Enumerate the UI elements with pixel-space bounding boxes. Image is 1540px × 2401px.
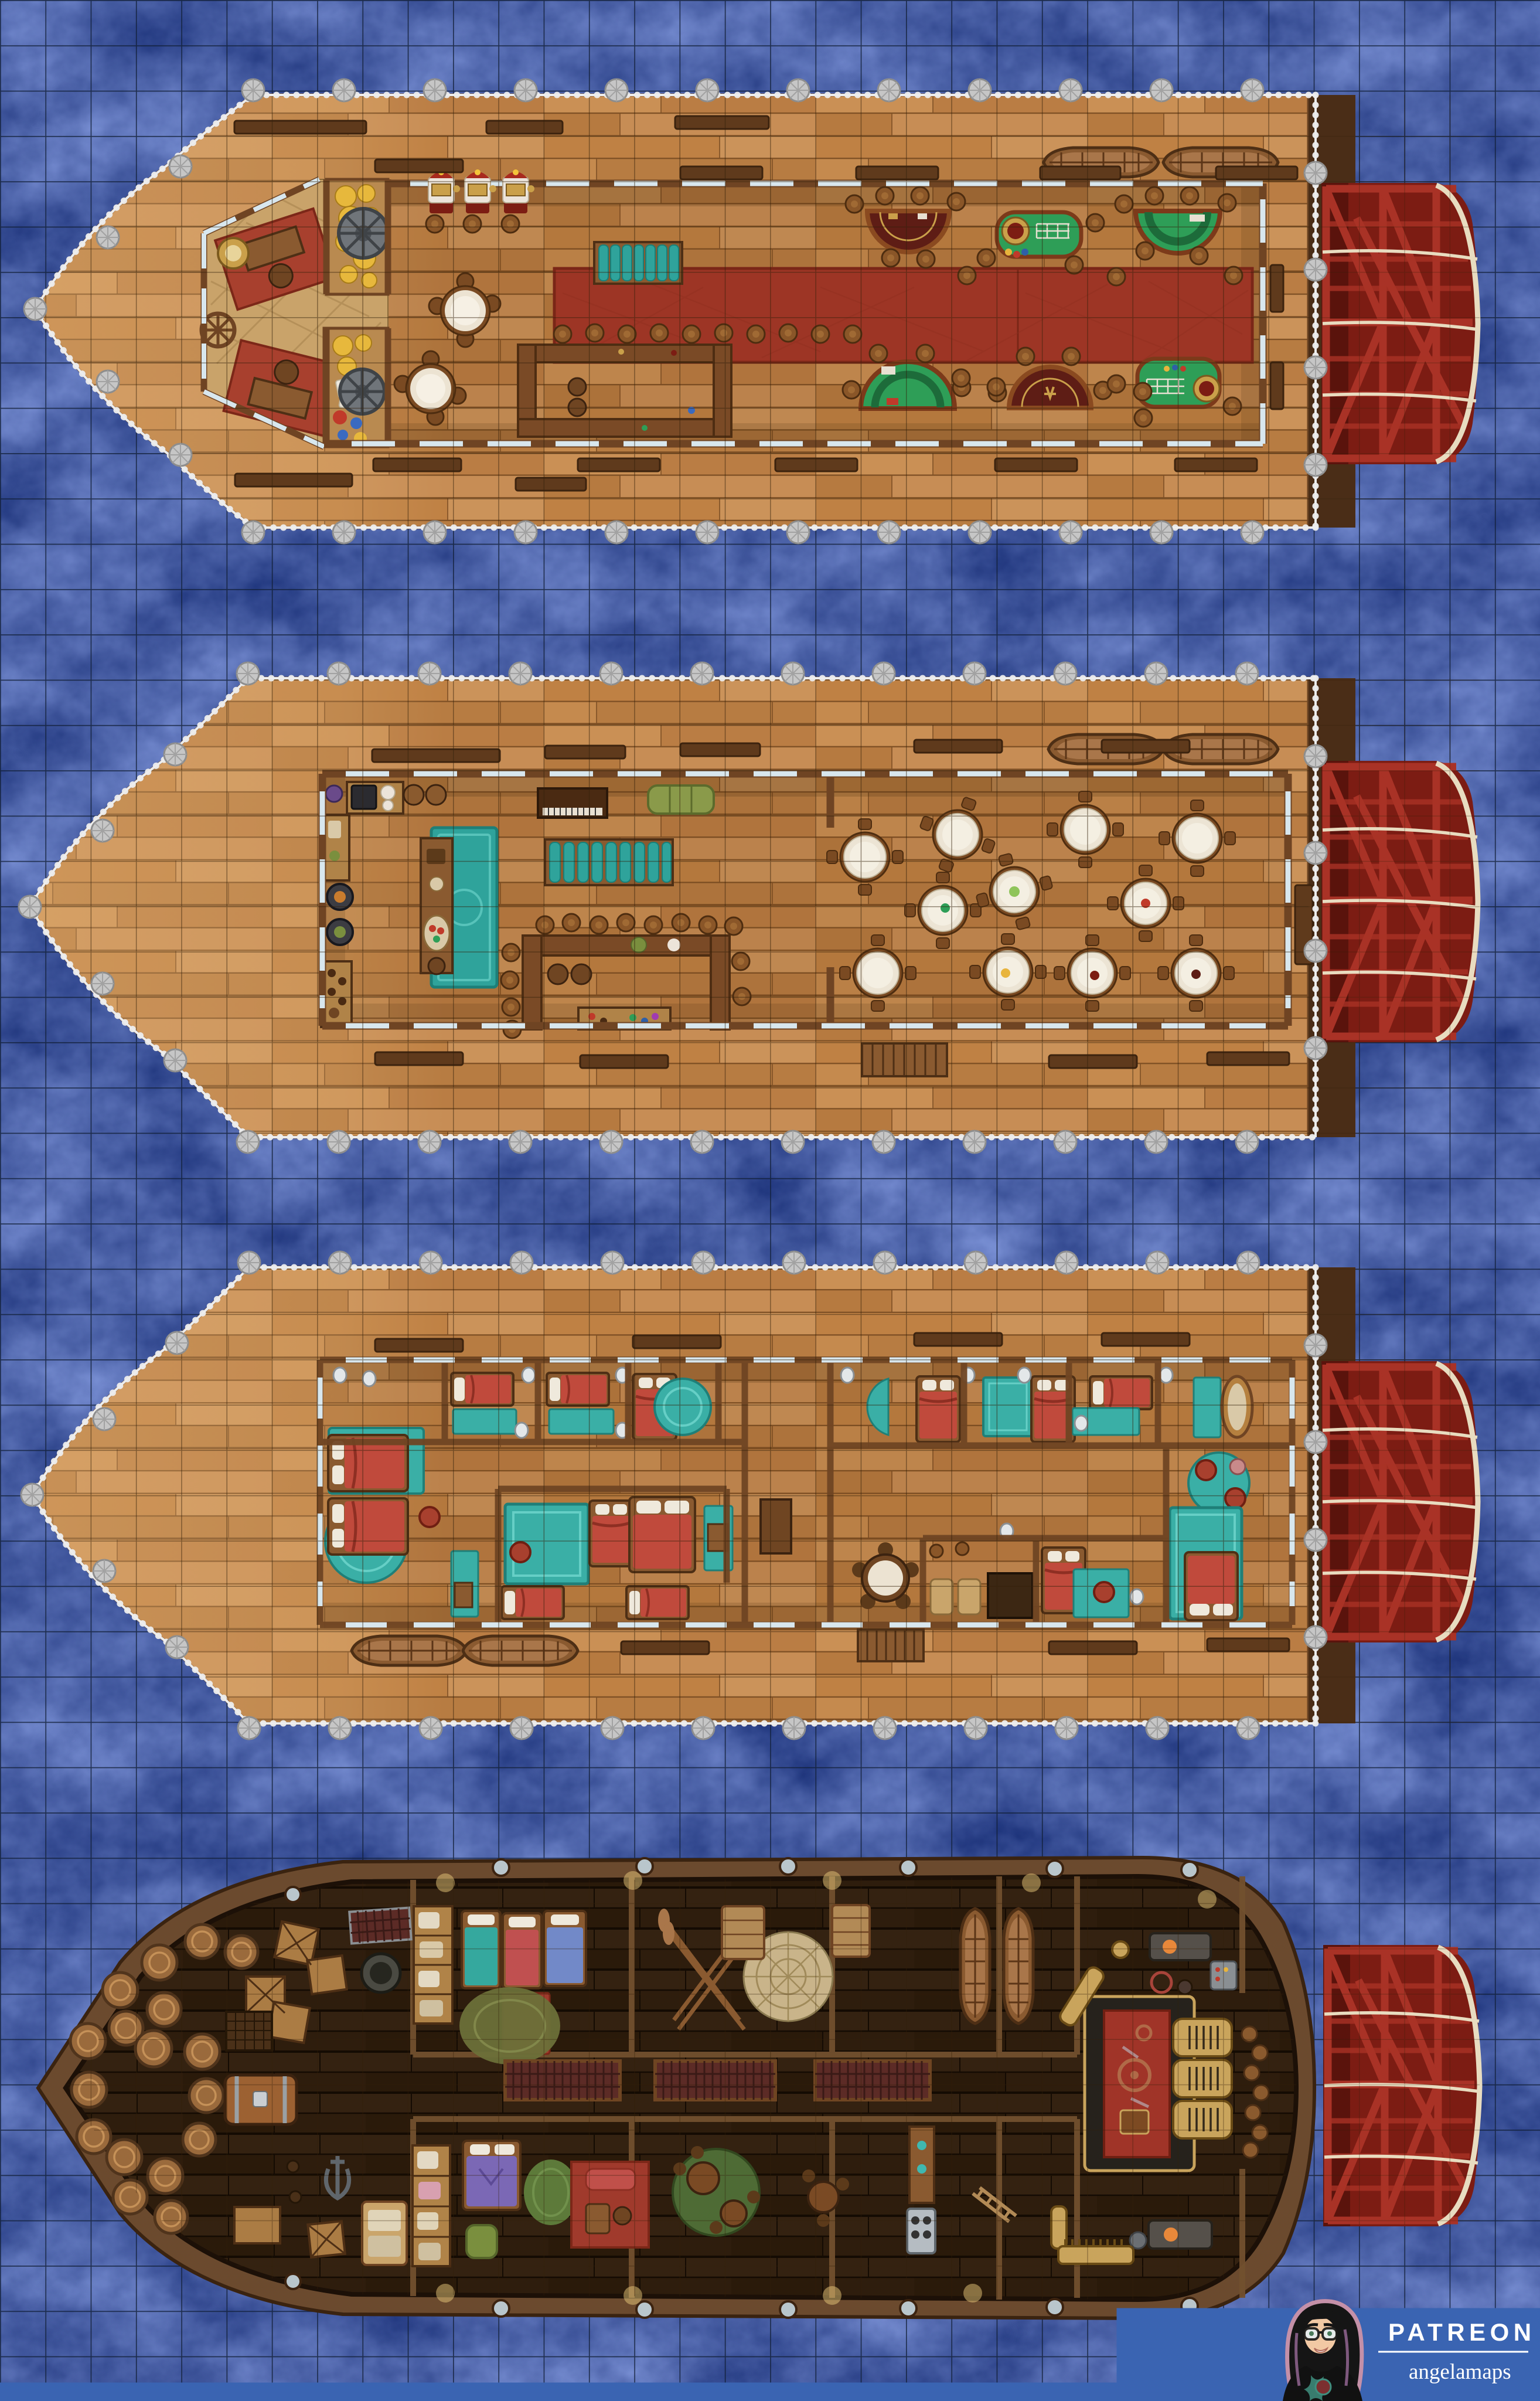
svg-text:angelamaps: angelamaps [1409, 2360, 1511, 2384]
svg-text:PATREON: PATREON [1388, 2318, 1536, 2346]
